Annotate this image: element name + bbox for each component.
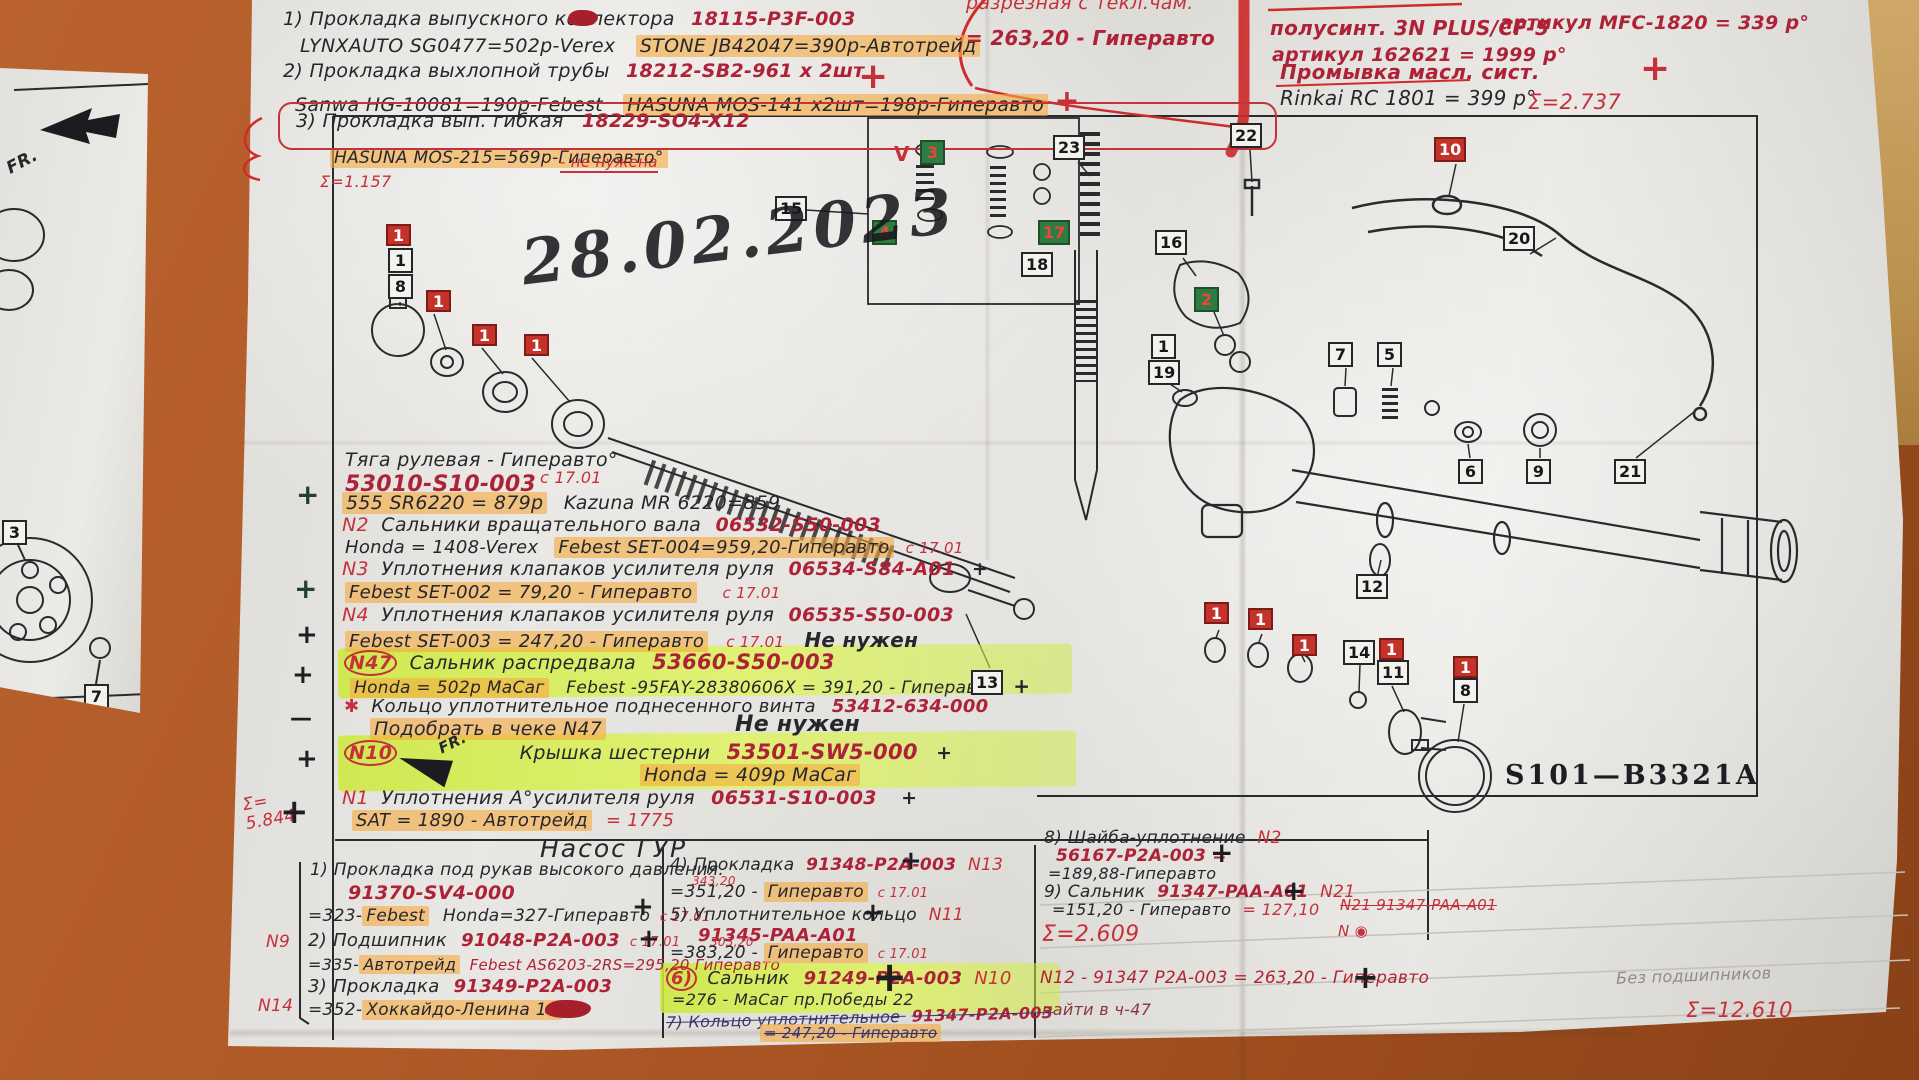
callout-23: 23 [1053,135,1085,160]
part-number: 91048-P2A-003 [461,930,620,951]
vendor: Гиперавто [764,943,868,963]
n-label: N10 [974,968,1011,989]
part-number: 91349-P2A-003 [454,976,613,997]
item-text: Сальники вращательного вала [381,514,701,536]
pump-sum-1: Σ=2.609 [1042,922,1139,947]
item-text: 9) Сальник [1044,882,1145,902]
red-1-sticker: 1 [1379,638,1404,660]
steering-line-7: Febest SET-002 = 79,20 - Гиперавто с 17.… [345,582,781,603]
plus-mark: + [1282,874,1305,907]
n-label: N1 [342,787,369,809]
red-1-sticker: 1 [1453,656,1478,678]
pump-c2-item-6: 6) Сальник 91249-P2A-003 N10 [666,968,1012,989]
item-text: Уплотнения А°усилителя руля [381,787,695,809]
small-red-mark: N ◉ [1338,922,1368,940]
plus-mark: + [901,787,917,809]
pump-c1-item-1: 1) Прокладка под рукав высокого давления… [310,860,724,880]
plus-mark: + [972,558,988,580]
callout-5: 5 [1377,342,1402,367]
callout-19: 19 [1148,360,1180,385]
callout-8: 8 [1453,678,1478,703]
plus-mark-large: + [872,952,907,1001]
part-number: 18212-SB2-961 х 2шт [626,60,865,82]
pump-c3-item-8: 8) Шайба-уплотнение N2 [1044,828,1282,848]
callout-22: 22 [1230,123,1262,148]
pump-c3-price-9: =151,20 - Гиперавто = 127,10 [1052,900,1319,919]
steering-line-8: N4 Уплотнения клапаков усилителя руля 06… [342,604,954,626]
item-text: Уплотнения клапаков усилителя руля [381,558,774,580]
plus-mark: + [1640,48,1670,89]
price-prefix: =323- [308,906,362,926]
vendor: Febest [362,906,429,926]
margin-plus: + [296,478,319,511]
steering-line-10: N47 Сальник распредвала 53660-S50-003 [344,650,835,674]
n-label: N11 [929,905,964,925]
small-parts-row [1334,388,1556,446]
pump-c2-item-5: 5) Уплотнительное кольцо N11 [670,905,964,925]
callout-16: 16 [1155,230,1187,255]
pump-c1-price-3: =352-Хоккайдо-Ленина 1а [308,1000,562,1020]
struck-part-note: N21 91347-PAA-A01 [1340,896,1497,914]
item-text: 2) Подшипник [308,930,447,951]
price-prefix: =383,20 - [670,943,758,963]
red-1-sticker: 1 [1292,634,1317,656]
price-b: = 1775 [606,810,674,831]
callout-14: 14 [1343,640,1375,665]
price: = 247,20 - Гиперавто [760,1024,941,1042]
part-number: 06534-S84-A01 [788,558,955,580]
not-needed-bold: Не нужен [735,712,860,737]
price-b: Kazuna MR 6220=859 [564,492,781,514]
plus-mark: + [936,742,952,764]
plus-mark: + [632,892,654,922]
item-text: Крышка шестерни [520,742,711,764]
steering-line-16: N1 Уплотнения А°усилителя руля 06531-S10… [342,787,917,809]
price-a: Febest SET-003 = 247,20 - Гиперавто [345,631,708,652]
steering-line-11: Honda = 502р МаСаг Febest -95FAY-2838060… [350,674,1030,698]
green-sticker-3: 3 [920,140,945,165]
callout-1-left: 1 [388,248,413,273]
callout-8-left: 8 [388,274,413,299]
margin-plus: + [280,792,309,832]
callout-10-red-sticker: 10 [1434,137,1466,162]
top-right-sum: Σ=2.737 [1528,90,1621,114]
red-1-sticker: 1 [426,290,451,312]
callout-12: 12 [1356,574,1388,599]
margin-plus: + [296,620,318,650]
part-number: 06535-S50-003 [788,604,954,626]
vendor: Автотрейд [359,955,460,974]
callout-18: 18 [1021,252,1053,277]
pump-c3-item-9: 9) Сальник 91347-PAA-A01 N21 [1044,882,1355,902]
feed-pipes [1245,180,1713,420]
plus-mark: + [862,898,884,928]
pump-sum-2: Σ=12.610 [1686,998,1793,1022]
red-1-sticker: 1 [472,324,497,346]
pump-c1-item-3: 3) Прокладка 91349-P2A-003 [308,976,612,997]
price-alt: Honda=327-Гиперавто [443,906,650,926]
pump-c2-item-4: 4) Прокладка 91348-P2A-003 N13 [670,855,1003,875]
pump-c2-price-7-struck: = 247,20 - Гиперавто [760,1024,941,1042]
photo-of-parts-sheet: FR. 3 7 [0,0,1919,1080]
steering-line-9: Febest SET-003 = 247,20 - Гиперавто с 17… [345,628,918,652]
plus-mark: + [858,56,888,97]
exhaust-sum: Σ=1.157 [320,172,391,191]
margin-plus: + [292,660,314,690]
item-number-circled: 6) [666,966,697,991]
plus-mark: + [1013,674,1030,698]
callout-9: 9 [1526,459,1551,484]
part-number: 18115-P3F-003 [691,8,856,30]
date-note: с 17.01 [906,539,964,557]
callout-6: 6 [1458,459,1483,484]
plus-mark: + [1210,836,1233,869]
item-text: 2) Прокладка выхлопной трубы [283,60,610,82]
note-text: Подобрать в чеке N47 [370,718,606,740]
price-prefix: =351,20 - [670,882,758,902]
n-label: N2 [342,514,369,536]
green-sticker-17: 17 [1038,220,1070,245]
input-shaft [1075,250,1250,520]
part-number: 06531-S10-003 [711,787,877,809]
steering-line-15: Honda = 409р МаСаг [640,764,860,786]
price-a: Febest SET-002 = 79,20 - Гиперавто [345,582,697,603]
cut-note: разрезная с текл.чам. [966,0,1194,14]
price-note: = 263,20 - Гиперавто [966,26,1215,50]
callout-21: 21 [1614,459,1646,484]
steering-line-12: ✱ Кольцо уплотнительное поднесенного вин… [344,696,988,717]
pump-c1-item-2: 2) Подшипник 91048-P2A-003 с 17.01 [308,930,680,951]
pump-c3-price-8: =189,88-Гиперавто [1048,864,1216,883]
not-needed-note: - не нужена [560,153,658,173]
price-b: STONE JB42047=390р-Автотрейд [636,35,981,57]
callout-1: 1 [1151,334,1176,359]
price-alt: = 127,10 [1243,900,1320,919]
price-prefix: =335- [308,955,359,974]
part-number: 91348-P2A-003 [806,855,956,875]
callout-7: 7 [1328,342,1353,367]
price-a: Honda = 502р МаСаг [350,678,549,698]
flush-product: Rinkai RC 1801 = 399 р° [1280,86,1537,110]
red-marker-blob-icon [545,1000,591,1018]
red-1-sticker: 1 [1204,602,1229,624]
not-needed: Не нужен [804,628,918,652]
n-label: N13 [968,855,1003,875]
oil-article-1: артикул MFC-1820 = 339 р° [1500,12,1809,34]
sheet-code: S101—B3321A [1505,760,1760,791]
callout-11: 11 [1377,660,1409,685]
exhaust-item-1-prices: LYNXAUTO SG0477=502р-Verex STONE JB42047… [300,35,980,57]
pump-c2-price-4: =351,20 - Гиперавто с 17.01 [670,882,928,902]
red-1-sticker: 1 [1248,608,1273,630]
price-b: Febest SET-004=959,20-Гиперавто [554,537,893,558]
plus-mark: + [1352,958,1379,996]
item-text: Сальник распредвала [410,652,636,674]
pump-header: Насос ГУР [540,834,687,863]
margin-minus: — [290,706,312,731]
item-text: 3) Прокладка [308,976,440,997]
vendor: Гиперавто [764,882,868,902]
price-a: LYNXAUTO SG0477=502р-Verex [300,35,615,57]
n-label: N4 [342,604,369,626]
part-number: 56167-P2A-003 = [1056,846,1227,866]
steering-line-4: N2 Сальники вращательного вала 06532-S50… [342,514,881,536]
red-outline-box [278,102,1277,150]
exhaust-item-2: 2) Прокладка выхлопной трубы 18212-SB2-9… [283,60,865,82]
n9-label: N9 [266,932,290,952]
star-mark: ✱ [344,696,359,717]
n-label: N3 [342,558,369,580]
red-1-sticker: 1 [386,224,411,246]
margin-plus: + [296,744,318,774]
price-b: Febest -95FAY-28380606X = 391,20 - Гипер… [566,678,997,698]
price-prefix: =352- [308,1000,362,1020]
callout-2-green-sticker: 2 [1194,287,1219,312]
steering-line-13: Подобрать в чеке N47 [370,718,606,740]
n-label-circled: N10 [344,740,397,766]
plus-mark: + [638,924,660,954]
callout-13: 13 [971,670,1003,695]
n-label: N2 [1258,828,1282,848]
part-number: 06532-S50-003 [715,514,881,536]
steering-line-6: N3 Уплотнения клапаков усилителя руля 06… [342,558,988,580]
price-a: Honda = 409р МаСаг [640,764,860,786]
gear-housing-and-tube [1170,388,1797,582]
vendor: Хоккайдо-Ленина 1а [362,1000,561,1020]
part-number: 91370-SV4-000 [348,882,515,904]
price-a: Honda = 1408-Verex [345,537,538,558]
n14-label: N14 [258,996,293,1016]
price-a: SAT = 1890 - Автотрейд [352,810,592,831]
item-text: Сальник [707,968,789,989]
date-note: с 17.01 [723,584,781,602]
callout-20: 20 [1503,226,1535,251]
date-note: с 17.01 [878,886,929,901]
find-in-check-note: найти в ч-47 [1042,1000,1151,1019]
date-note: с 17.01 [726,633,784,651]
margin-plus: + [294,572,317,605]
part-number: 53660-S50-003 [652,650,835,674]
steering-line-5: Honda = 1408-Verex Febest SET-004=959,20… [345,537,964,558]
price-a: 555 SR6220 = 879р [342,492,547,514]
flush-title: Промывка масл. сист. [1280,60,1540,84]
part-number: 91347-P2A-003 [911,1003,1053,1026]
red-marker-blob-icon [568,10,598,26]
steering-line-3: 555 SR6220 = 879р Kazuna MR 6220=859 [342,492,780,514]
n-label-circled: N47 [344,650,397,676]
bottom-parts [1205,544,1491,812]
item-text: 4) Прокладка [670,855,794,875]
price: =151,20 - Гиперавто [1052,900,1231,919]
red-1-sticker: 1 [524,334,549,356]
part-number: 53501-SW5-000 [727,740,918,764]
item-text: Уплотнения клапаков усилителя руля [381,604,774,626]
steering-line-17: SAT = 1890 - Автотрейд = 1775 [352,810,674,831]
item-text: 1) Прокладка выпускного коллектора [283,8,675,30]
date-note: с 17.01 [540,468,602,487]
plus-mark: + [900,846,922,876]
